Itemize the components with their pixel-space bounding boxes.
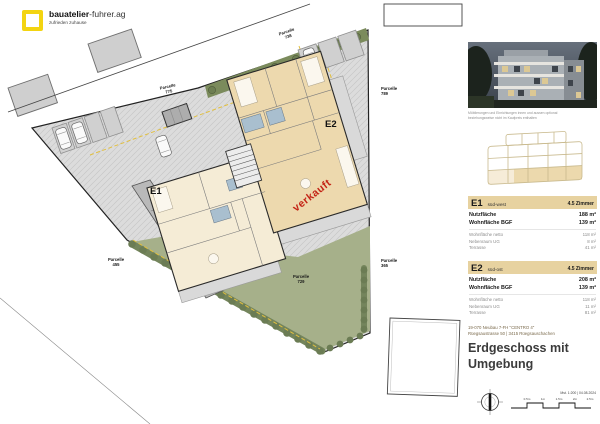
north-arrow-icon — [477, 389, 503, 415]
floor-diagram — [478, 129, 590, 191]
brand-rest: -fuhrer.ag — [89, 9, 125, 19]
page-title: Erdgeschoss mit Umgebung — [468, 341, 569, 372]
brand-tagline: zufrieden zuhause — [49, 20, 126, 25]
unit-panel-e2: E2 süd-ost 4.5 Zimmer Nutzfläche 208 m² … — [468, 261, 597, 315]
row-value: 41 m² — [585, 245, 596, 250]
svg-text:729: 729 — [298, 279, 306, 284]
row-label: Terrasse — [469, 310, 486, 315]
row-label: Wohnfläche BGF — [469, 220, 512, 226]
unit-e2-header: E2 süd-ost 4.5 Zimmer — [468, 261, 597, 274]
table-row: Wohnfläche BGF 139 m² — [469, 218, 596, 226]
page-title-line1: Erdgeschoss mit — [468, 341, 569, 357]
table-row: Terrasse 81 m² — [469, 309, 596, 316]
project-address: Rüegsaustrasse 50 | 3415 Rüegsauschachen — [468, 331, 555, 337]
building-photo — [468, 42, 597, 108]
photo-caption-line2: beziehungsweise nicht im Kaufpreis entha… — [468, 116, 597, 121]
unit-e1-rooms: 4.5 Zimmer — [568, 201, 594, 208]
row-label: Wohnfläche netto — [469, 297, 503, 302]
page-title-line2: Umgebung — [468, 357, 569, 373]
scale-tick: 1m — [541, 397, 546, 401]
row-label: Wohnfläche netto — [469, 232, 503, 237]
row-label: Nutzfläche — [469, 277, 496, 283]
logo: bauatelier-fuhrer.ag zufrieden zuhause — [22, 10, 126, 31]
scale-tick: 2.5m — [587, 397, 594, 401]
neighbor-building — [384, 4, 462, 26]
neighbor-building — [8, 29, 141, 116]
neighbor-building — [387, 318, 460, 396]
unit-e2-rooms: 4.5 Zimmer — [568, 266, 594, 273]
unit-label-e1: E1 — [150, 186, 162, 197]
row-label: Nebenraum UG — [469, 304, 500, 309]
plan-sheet: Parcelle738 Parcelle775 Parcelle789 Parc… — [0, 0, 600, 424]
row-label: Nutzfläche — [469, 212, 496, 218]
building-photo-image — [468, 42, 597, 108]
table-row: Nutzfläche 208 m² — [469, 275, 596, 283]
unit-e2-id: E2 — [471, 264, 483, 274]
scale-bar: 0.5m 1m 1.5m 2m 2.5m — [510, 396, 596, 410]
svg-text:789: 789 — [381, 91, 389, 96]
table-row: Terrasse 41 m² — [469, 244, 596, 251]
row-value: 188 m² — [579, 212, 596, 218]
parcel-boundary-line — [0, 298, 150, 424]
row-label: Nebenraum UG — [469, 239, 500, 244]
row-label: Wohnfläche BGF — [469, 285, 512, 291]
info-panel: Möblierungen und Einrichtungen innen und… — [465, 0, 600, 424]
table-row: Wohnfläche BGF 139 m² — [469, 283, 596, 291]
brand-bold: bauatelier — [49, 9, 89, 19]
row-value: 118 m² — [583, 232, 596, 237]
scale-tick: 0.5m — [524, 397, 531, 401]
unit-label-e2: E2 — [325, 119, 337, 130]
svg-text:738: 738 — [284, 33, 293, 40]
svg-text:455: 455 — [113, 262, 121, 267]
photo-caption: Möblierungen und Einrichtungen innen und… — [468, 111, 597, 121]
parcel-label-789: Parcelle789 — [381, 86, 398, 96]
unit-e1-header: E1 süd-west 4.5 Zimmer — [468, 196, 597, 209]
scale-note: Mst. 1:200 | 04.08.2024 — [510, 391, 596, 395]
row-value: 81 m² — [585, 310, 596, 315]
row-value: 118 m² — [583, 297, 596, 302]
brand-name: bauatelier-fuhrer.ag — [49, 10, 126, 19]
scale-tick: 2m — [573, 397, 578, 401]
logo-mark-icon — [22, 10, 43, 31]
unit-e1-id: E1 — [471, 199, 483, 209]
row-value: 139 m² — [579, 285, 596, 291]
parcel-label-455: Parcelle455 — [108, 257, 125, 267]
row-value: 208 m² — [579, 277, 596, 283]
row-value: 139 m² — [579, 220, 596, 226]
table-row: Nutzfläche 188 m² — [469, 210, 596, 218]
svg-text:365: 365 — [381, 263, 389, 268]
row-label: Terrasse — [469, 245, 486, 250]
project-info: 19-070 Neubau 7-FH "CENTRO 4" Rüegsaustr… — [468, 325, 555, 338]
parcel-label-365: Parcelle365 — [381, 258, 398, 268]
unit-e2-orientation: süd-ost — [488, 267, 503, 273]
scale-tick: 1.5m — [556, 397, 563, 401]
floor-diagram-image — [478, 129, 590, 191]
row-value: 11 m² — [585, 304, 596, 309]
unit-panel-e1: E1 süd-west 4.5 Zimmer Nutzfläche 188 m²… — [468, 196, 597, 250]
row-value: 8 m² — [587, 239, 596, 244]
parcel-label-738: Parcelle738 — [278, 26, 297, 41]
unit-e1-orientation: süd-west — [488, 202, 506, 208]
